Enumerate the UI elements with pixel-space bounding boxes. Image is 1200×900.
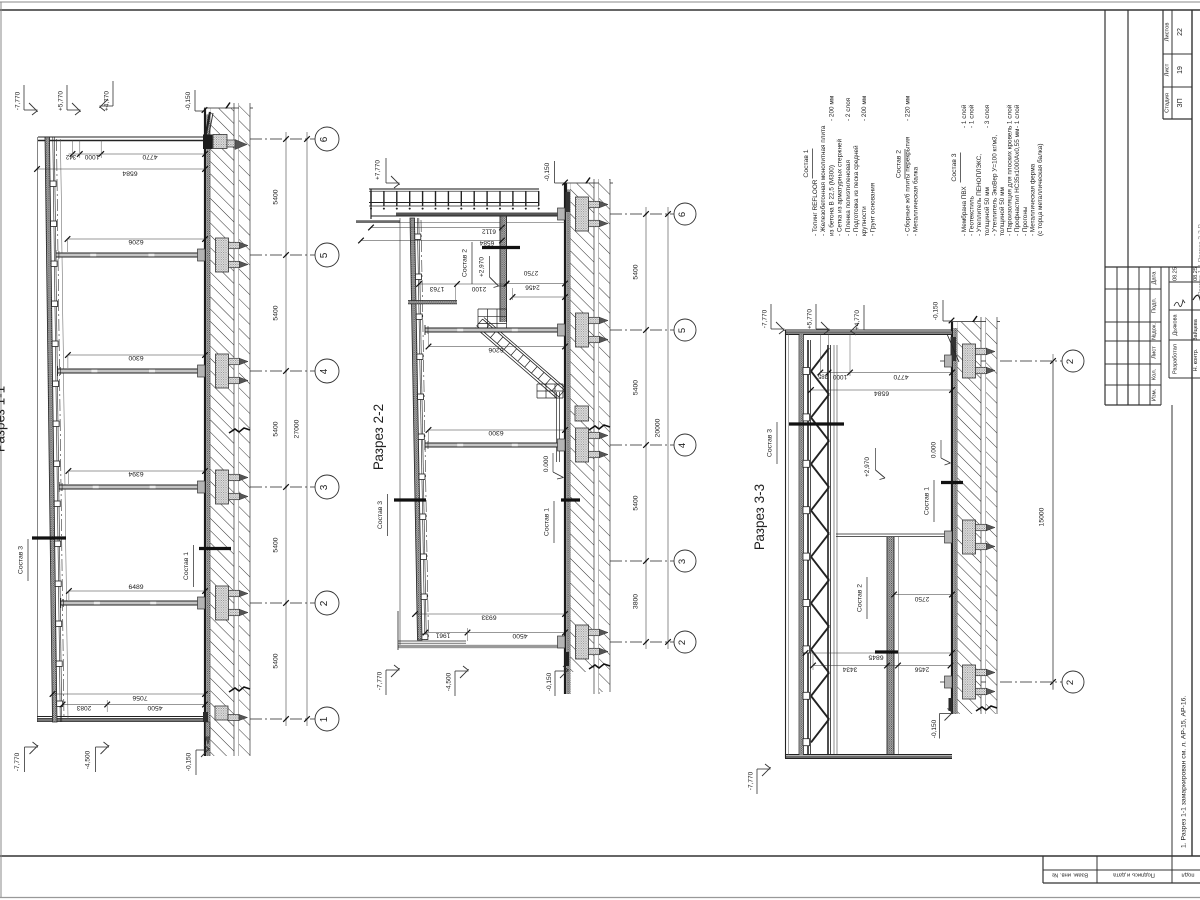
svg-text:- Топинг REFLOOR: - Топинг REFLOOR <box>812 179 819 236</box>
svg-text:-7,770: -7,770 <box>748 771 755 790</box>
svg-text:-0,150: -0,150 <box>931 719 938 738</box>
svg-text:- Пленка полиэтиленовая: - Пленка полиэтиленовая <box>845 159 852 236</box>
svg-text:385: 385 <box>817 373 828 379</box>
svg-text:2083: 2083 <box>76 704 91 711</box>
svg-text:2: 2 <box>677 640 688 645</box>
svg-text:5400: 5400 <box>273 189 280 204</box>
svg-text:3434: 3434 <box>842 666 857 673</box>
svg-text:Состав 1: Состав 1 <box>183 552 190 580</box>
svg-text:- 200 мм: - 200 мм <box>861 96 868 121</box>
svg-text:Состав 3: Состав 3 <box>18 546 25 574</box>
svg-text:27000: 27000 <box>294 419 301 438</box>
svg-text:- Металлическая ферма: - Металлическая ферма <box>1029 163 1036 236</box>
svg-text:6: 6 <box>677 212 688 217</box>
svg-text:-7,770: -7,770 <box>14 752 21 771</box>
svg-text:Состав 1: Состав 1 <box>924 487 931 515</box>
svg-text:2750: 2750 <box>523 269 538 276</box>
svg-text:-7,770: -7,770 <box>15 91 22 110</box>
svg-text:Подпись и дата: Подпись и дата <box>1112 872 1154 878</box>
svg-text:- Утеплитель ЭкоВер У=100 кг/м: - Утеплитель ЭкоВер У=100 кг/м3, <box>991 135 998 236</box>
svg-text:+2,970: +2,970 <box>864 457 871 477</box>
svg-text:0.000: 0.000 <box>931 441 938 458</box>
svg-text:- Сборные ж/б плиты перекрытия: - Сборные ж/б плиты перекрытия <box>904 136 912 236</box>
svg-text:- 1 слой: - 1 слой <box>968 104 976 128</box>
svg-text:3: 3 <box>319 484 330 490</box>
svg-text:7056: 7056 <box>132 694 147 701</box>
svg-text:№док.: №док. <box>1152 323 1158 340</box>
svg-text:Дата: Дата <box>1152 271 1158 285</box>
svg-text:- Профнастил НС35х1000Ах0,55 м: - Профнастил НС35х1000Ах0,55 мм <box>1014 129 1021 236</box>
svg-text:2: 2 <box>319 600 330 606</box>
svg-text:Состав 2: Состав 2 <box>857 584 864 612</box>
svg-text:2456: 2456 <box>914 666 929 673</box>
svg-text:15000: 15000 <box>1039 507 1046 526</box>
svg-text:6584: 6584 <box>122 170 137 177</box>
svg-text:+5,770: +5,770 <box>58 91 65 111</box>
svg-text:Лист: Лист <box>1152 346 1158 359</box>
svg-text:6112: 6112 <box>482 228 496 235</box>
svg-text:2456: 2456 <box>525 284 540 291</box>
svg-text:- 3 слоя: - 3 слоя <box>984 104 991 128</box>
svg-text:ЗП: ЗП <box>1177 98 1184 107</box>
svg-text:- 2 слоя: - 2 слоя <box>845 97 852 121</box>
svg-text:- 1 слой: - 1 слой <box>960 104 968 128</box>
svg-text:5400: 5400 <box>633 495 640 510</box>
svg-text:5: 5 <box>677 328 688 333</box>
svg-text:- 1 слой: - 1 слой <box>1013 104 1021 128</box>
svg-text:Разрез 1-1: Разрез 1-1 <box>0 386 8 452</box>
svg-text:4770: 4770 <box>142 153 157 160</box>
svg-text:1000: 1000 <box>832 373 847 380</box>
svg-text:Зайцева: Зайцева <box>1192 318 1199 340</box>
svg-text:342: 342 <box>65 153 76 160</box>
svg-text:5400: 5400 <box>633 264 640 279</box>
svg-text:Взам. инв. №: Взам. инв. № <box>1052 872 1088 878</box>
svg-text:Состав 2: Состав 2 <box>896 150 903 178</box>
svg-text:- 220 мм: - 220 мм <box>905 96 912 121</box>
svg-text:-7,770: -7,770 <box>377 671 384 690</box>
svg-text:4770: 4770 <box>893 373 908 380</box>
svg-text:- Железобетонная монолитная пл: - Железобетонная монолитная плита <box>819 125 827 236</box>
svg-text:2: 2 <box>1065 680 1076 685</box>
svg-text:Состав 3: Состав 3 <box>951 153 958 181</box>
svg-text:08.25: 08.25 <box>1173 267 1179 281</box>
svg-text:5400: 5400 <box>633 380 640 395</box>
svg-text:-4,500: -4,500 <box>446 672 453 691</box>
svg-text:0.000: 0.000 <box>543 455 550 472</box>
svg-text:4500: 4500 <box>147 704 162 711</box>
svg-text:1763: 1763 <box>429 285 444 292</box>
svg-text:- Подготовка из песка средней: - Подготовка из песка средней <box>852 145 860 236</box>
svg-text:22: 22 <box>1177 28 1184 36</box>
svg-text:1000: 1000 <box>84 153 99 160</box>
svg-text:Стадия: Стадия <box>1165 93 1171 113</box>
svg-text:1. Разрез 1-1 замаркирован см.: 1. Разрез 1-1 замаркирован см. л. АР-15,… <box>1181 696 1188 848</box>
svg-text:4: 4 <box>677 443 688 448</box>
svg-text:- Пароизоляция для плоских кро: - Пароизоляция для плоских кровель <box>1007 125 1014 236</box>
svg-text:-4,500: -4,500 <box>85 750 92 769</box>
svg-text:(с торца металлическая балка): (с торца металлическая балка) <box>1036 144 1044 236</box>
svg-text:Дьякова: Дьякова <box>1173 314 1179 336</box>
svg-text:+7,770: +7,770 <box>375 160 382 180</box>
svg-text:крупности: крупности <box>861 206 868 236</box>
svg-text:-7,770: -7,770 <box>762 309 769 328</box>
svg-text:+4,770: +4,770 <box>104 91 111 111</box>
svg-text:-0,150: -0,150 <box>186 752 193 771</box>
svg-text:6206: 6206 <box>128 238 143 245</box>
svg-text:- Мембрана ПВХ: - Мембрана ПВХ <box>960 186 968 236</box>
svg-text:Состав 1: Состав 1 <box>803 149 810 177</box>
svg-text:толщиной 50 мм: толщиной 50 мм <box>983 187 991 236</box>
svg-text:- 1 слой: - 1 слой <box>1006 104 1014 128</box>
svg-text:- Геотекстиль: - Геотекстиль <box>969 195 976 236</box>
svg-text:2750: 2750 <box>914 595 929 602</box>
svg-text:-0,150: -0,150 <box>544 162 551 181</box>
svg-text:- Прогоны: - Прогоны <box>1022 206 1029 236</box>
svg-text:Состав 3: Состав 3 <box>377 501 384 529</box>
svg-text:Подп.: Подп. <box>1152 297 1158 313</box>
svg-text:6394: 6394 <box>128 470 143 477</box>
svg-text:Разработал: Разработал <box>1173 344 1179 374</box>
svg-text:- Утеплитель ПЕНОПЛЭКС,: - Утеплитель ПЕНОПЛЭКС, <box>976 154 983 236</box>
svg-text:-0,150: -0,150 <box>933 301 940 320</box>
svg-text:+2,970: +2,970 <box>479 257 486 277</box>
svg-text:3: 3 <box>677 559 688 564</box>
svg-text:5: 5 <box>319 252 330 258</box>
svg-text:6933: 6933 <box>481 614 496 621</box>
svg-text:- Грунт основания: - Грунт основания <box>869 182 876 236</box>
svg-text:6489: 6489 <box>128 584 143 591</box>
svg-text:4: 4 <box>319 368 330 374</box>
svg-text:Разрез 3-3: Разрез 3-3 <box>752 484 767 550</box>
svg-text:6845: 6845 <box>868 654 883 661</box>
svg-text:- 200 мм: - 200 мм <box>828 96 835 121</box>
svg-text:6584: 6584 <box>479 239 494 246</box>
svg-text:- Сетка из арматурных стержней: - Сетка из арматурных стержней <box>836 138 844 236</box>
svg-text:из бетона В 22,5 (М300): из бетона В 22,5 (М300) <box>827 165 835 236</box>
svg-text:19: 19 <box>1177 66 1184 74</box>
svg-text:подл: подл <box>1181 872 1194 878</box>
svg-text:4500: 4500 <box>512 632 527 639</box>
svg-text:6206: 6206 <box>488 346 503 353</box>
svg-text:6300: 6300 <box>488 429 503 436</box>
svg-text:6584: 6584 <box>874 390 889 397</box>
svg-text:Состав 1: Состав 1 <box>544 508 551 536</box>
svg-text:Лист: Лист <box>1165 63 1171 76</box>
svg-text:Н. контр.: Н. контр. <box>1193 348 1199 371</box>
svg-text:Состав 2: Состав 2 <box>462 249 469 277</box>
svg-text:-0,150: -0,150 <box>185 91 192 110</box>
svg-text:6: 6 <box>319 136 330 142</box>
svg-text:2: 2 <box>1065 359 1076 364</box>
svg-text:Листов: Листов <box>1165 23 1171 42</box>
svg-text:5400: 5400 <box>273 305 280 320</box>
svg-text:3800: 3800 <box>633 594 640 609</box>
svg-text:+5,770: +5,770 <box>807 309 814 329</box>
svg-text:Изм.: Изм. <box>1152 388 1158 401</box>
svg-text:толщиной 50 мм: толщиной 50 мм <box>998 187 1006 236</box>
svg-text:Состав 3: Состав 3 <box>767 429 774 457</box>
svg-text:6300: 6300 <box>128 354 143 361</box>
svg-text:Кол.: Кол. <box>1152 368 1158 380</box>
svg-text:5400: 5400 <box>273 537 280 552</box>
svg-text:5400: 5400 <box>273 653 280 668</box>
svg-text:5400: 5400 <box>273 421 280 436</box>
svg-text:1: 1 <box>319 716 330 722</box>
svg-text:2100: 2100 <box>471 285 486 292</box>
svg-text:20000: 20000 <box>655 418 662 437</box>
svg-text:1961: 1961 <box>435 632 450 639</box>
svg-text:- Металлическая балка: - Металлическая балка <box>912 166 920 236</box>
svg-text:Разрез 2-2: Разрез 2-2 <box>371 404 386 470</box>
svg-text:-0,150: -0,150 <box>546 672 553 691</box>
